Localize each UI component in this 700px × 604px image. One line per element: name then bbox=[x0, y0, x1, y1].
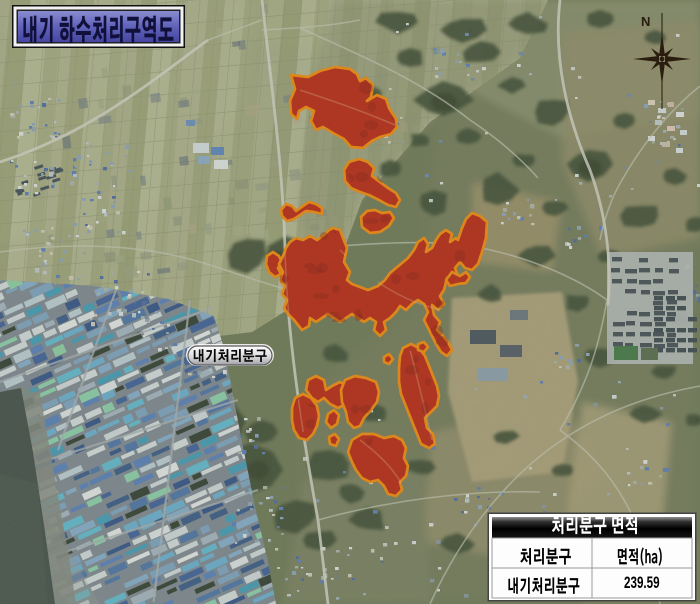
svg-text:N: N bbox=[641, 14, 650, 29]
svg-text:239.59: 239.59 bbox=[624, 573, 660, 592]
